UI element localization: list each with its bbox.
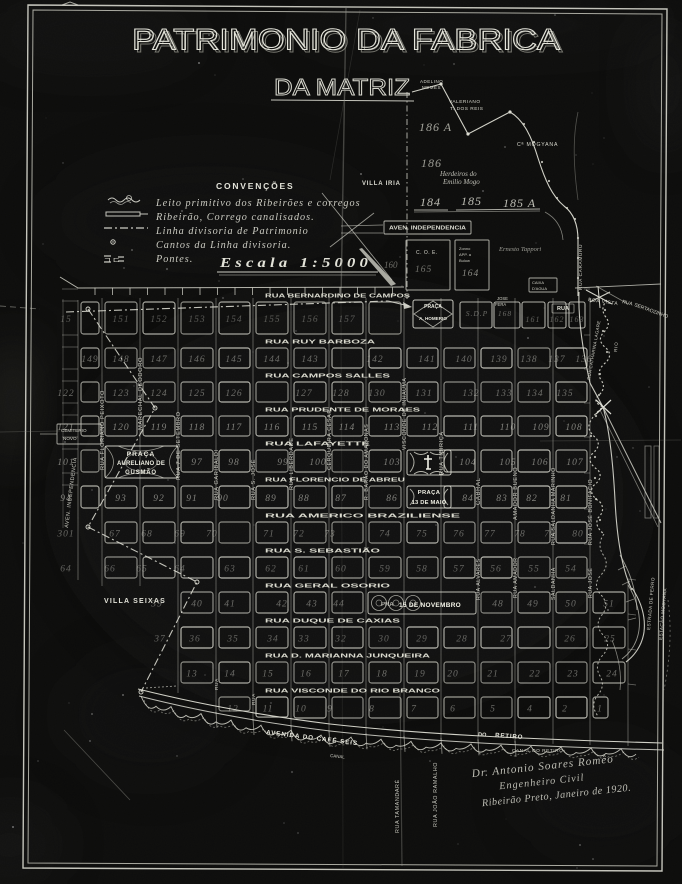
svg-text:Linha divisoria de Patrimonio: Linha divisoria de Patrimonio (155, 226, 309, 237)
svg-text:124: 124 (150, 389, 167, 399)
svg-text:VILLA IRIA: VILLA IRIA (362, 181, 401, 187)
svg-text:142: 142 (366, 355, 383, 365)
svg-text:DO: DO (478, 732, 487, 739)
svg-text:161: 161 (526, 315, 541, 324)
svg-text:70: 70 (206, 530, 218, 540)
svg-text:11: 11 (263, 705, 274, 715)
svg-text:27: 27 (500, 635, 512, 645)
svg-text:JOSE: JOSE (497, 296, 508, 301)
svg-text:156: 156 (301, 315, 318, 325)
svg-text:35: 35 (226, 635, 239, 645)
svg-text:78: 78 (514, 530, 526, 540)
svg-text:115: 115 (302, 423, 319, 433)
svg-text:Bulow: Bulow (459, 258, 470, 263)
svg-text:RUA S. SEBASTIÃO: RUA S. SEBASTIÃO (265, 548, 382, 555)
svg-text:RUA ALVARES: RUA ALVARES (476, 558, 482, 600)
svg-text:186 A: 186 A (419, 120, 452, 134)
svg-text:14: 14 (224, 670, 236, 680)
svg-text:152: 152 (150, 315, 167, 325)
svg-text:CANAL DO RETIRO: CANAL DO RETIRO (512, 748, 563, 754)
svg-text:132: 132 (462, 389, 479, 399)
svg-text:117: 117 (226, 423, 243, 433)
svg-text:RUA GERAL OSORIO: RUA GERAL OSORIO (265, 584, 392, 590)
svg-text:99: 99 (277, 458, 289, 468)
svg-text:81: 81 (560, 494, 572, 504)
svg-text:104: 104 (459, 458, 476, 468)
svg-text:147: 147 (150, 355, 168, 365)
svg-text:MEMES: MEMES (422, 85, 441, 90)
svg-text:24: 24 (606, 670, 618, 680)
svg-text:42: 42 (276, 600, 288, 610)
svg-text:25: 25 (604, 635, 616, 645)
svg-text:RUA S. JOSÉ: RUA S. JOSÉ (250, 459, 257, 500)
svg-text:114: 114 (339, 423, 356, 433)
svg-text:49: 49 (527, 600, 539, 610)
svg-text:13 DE MAIO: 13 DE MAIO (412, 500, 447, 506)
svg-text:RUA AMERICO BRAZILIENSE: RUA AMERICO BRAZILIENSE (265, 514, 461, 520)
svg-text:88: 88 (298, 494, 310, 504)
svg-text:Ernesto Tappori: Ernesto Tappori (498, 246, 541, 253)
svg-text:145: 145 (225, 355, 242, 365)
svg-text:84: 84 (462, 494, 474, 504)
svg-text:64: 64 (60, 565, 72, 575)
svg-text:CEMITERIO: CEMITERIO (61, 428, 87, 433)
svg-text:MARECHAL DEODORO: MARECHAL DEODORO (138, 357, 144, 430)
svg-text:135: 135 (556, 389, 573, 399)
svg-text:109: 109 (532, 423, 549, 433)
svg-text:13: 13 (186, 670, 198, 680)
svg-text:185: 185 (461, 194, 482, 208)
svg-text:164: 164 (462, 269, 479, 279)
svg-text:163: 163 (570, 315, 585, 324)
svg-text:23: 23 (567, 670, 579, 680)
svg-text:57: 57 (453, 565, 465, 575)
svg-text:RUA BERNARDINO DE CAMPOS: RUA BERNARDINO DE CAMPOS (265, 294, 411, 300)
svg-text:ADELINO: ADELINO (420, 79, 443, 84)
svg-text:48: 48 (492, 600, 504, 610)
svg-text:PRAÇA: PRAÇA (424, 304, 442, 310)
svg-text:59: 59 (379, 565, 391, 575)
svg-text:62: 62 (265, 565, 277, 575)
svg-text:RUA LAFAYETTE: RUA LAFAYETTE (265, 442, 371, 448)
svg-text:21: 21 (487, 670, 499, 680)
svg-text:RUA D. MARIANNA JUNQUEIRA: RUA D. MARIANNA JUNQUEIRA (265, 654, 430, 660)
svg-text:43: 43 (306, 600, 318, 610)
svg-text:Leito primitivo dos Ribeirões: Leito primitivo dos Ribeirões e corregos (155, 198, 361, 209)
svg-text:127: 127 (295, 389, 313, 399)
svg-text:155: 155 (263, 315, 280, 325)
svg-text:86: 86 (386, 494, 398, 504)
svg-text:T. DOS REIS: T. DOS REIS (450, 106, 484, 112)
svg-text:7: 7 (411, 705, 417, 715)
svg-text:RUA: RUA (251, 693, 257, 705)
svg-text:Cª MOGYANA: Cª MOGYANA (517, 142, 558, 148)
svg-text:5: 5 (490, 705, 496, 715)
svg-text:Pontes.: Pontes. (155, 254, 193, 265)
svg-text:RUA AMADOR: RUA AMADOR (513, 557, 519, 598)
svg-text:157: 157 (338, 315, 356, 325)
svg-text:60: 60 (335, 565, 347, 575)
svg-text:87: 87 (335, 494, 347, 504)
svg-text:301: 301 (56, 530, 74, 540)
svg-text:185 A: 185 A (503, 196, 536, 210)
svg-text:154: 154 (225, 315, 242, 325)
svg-text:41: 41 (224, 600, 236, 610)
svg-text:50: 50 (565, 600, 577, 610)
svg-text:106: 106 (531, 458, 548, 468)
svg-text:77: 77 (484, 530, 496, 540)
svg-text:98: 98 (228, 458, 240, 468)
svg-text:162: 162 (550, 315, 565, 324)
svg-text:116: 116 (264, 423, 281, 433)
svg-text:125: 125 (188, 389, 205, 399)
svg-text:26: 26 (564, 635, 576, 645)
svg-text:130: 130 (368, 389, 385, 399)
svg-text:18: 18 (376, 670, 388, 680)
svg-text:148: 148 (112, 355, 129, 365)
svg-text:82: 82 (526, 494, 538, 504)
svg-text:128: 128 (332, 389, 349, 399)
svg-text:186: 186 (421, 156, 442, 170)
svg-text:153: 153 (188, 315, 205, 325)
svg-text:15: 15 (60, 315, 72, 325)
svg-text:1: 1 (597, 705, 603, 715)
svg-text:44: 44 (333, 600, 345, 610)
svg-text:PRA: PRA (381, 602, 394, 608)
svg-text:36: 36 (188, 635, 201, 645)
svg-text:6: 6 (450, 705, 456, 715)
svg-text:2: 2 (562, 705, 568, 715)
svg-text:CAIXA: CAIXA (532, 280, 544, 285)
svg-text:CONVENÇÕES: CONVENÇÕES (216, 181, 294, 191)
svg-text:184: 184 (420, 195, 441, 209)
svg-text:69: 69 (174, 530, 186, 540)
svg-text:VALERIANO: VALERIANO (449, 99, 481, 105)
svg-text:123: 123 (112, 389, 129, 399)
svg-text:111: 111 (463, 423, 479, 433)
svg-text:9: 9 (327, 705, 333, 715)
svg-text:74: 74 (379, 530, 391, 540)
svg-text:140: 140 (455, 355, 472, 365)
svg-text:VILLA SEIXAS: VILLA SEIXAS (104, 598, 166, 605)
svg-text:Emilio Mogo: Emilio Mogo (442, 178, 480, 186)
svg-text:54: 54 (565, 565, 577, 575)
svg-text:CABRAL: CABRAL (476, 477, 482, 505)
svg-text:CERQUEIRA CESAR: CERQUEIRA CESAR (327, 409, 333, 470)
svg-text:RUA PRUDENTE DE MORAES: RUA PRUDENTE DE MORAES (265, 408, 421, 414)
svg-text:D'AGUA: D'AGUA (532, 286, 547, 291)
svg-text:118: 118 (189, 423, 206, 433)
svg-text:Escala 1:5000: Escala 1:5000 (219, 256, 372, 271)
svg-text:80: 80 (572, 530, 584, 540)
svg-text:RUA: RUA (214, 678, 220, 690)
svg-text:A. HOMERIO: A. HOMERIO (419, 316, 447, 321)
svg-text:76: 76 (453, 530, 465, 540)
svg-text:134: 134 (526, 389, 543, 399)
svg-text:R. BARÃO DO AMAZONAS: R. BARÃO DO AMAZONAS (363, 424, 370, 500)
svg-text:126: 126 (225, 389, 242, 399)
svg-text:29: 29 (416, 635, 428, 645)
svg-text:15: 15 (262, 670, 274, 680)
svg-text:103: 103 (383, 458, 400, 468)
svg-text:RIO: RIO (613, 341, 619, 352)
svg-text:58: 58 (416, 565, 428, 575)
svg-text:19: 19 (414, 670, 426, 680)
svg-text:10: 10 (295, 705, 307, 715)
svg-text:146: 146 (188, 355, 205, 365)
svg-text:105: 105 (499, 458, 516, 468)
svg-text:91: 91 (186, 494, 198, 504)
svg-text:PRAÇA: PRAÇA (127, 451, 155, 458)
svg-text:151: 151 (112, 315, 129, 325)
svg-text:RUA SALDANHA MARINHO: RUA SALDANHA MARINHO (551, 467, 557, 545)
svg-text:37: 37 (153, 635, 166, 645)
svg-text:83: 83 (496, 494, 508, 504)
svg-text:NOVO: NOVO (63, 436, 77, 441)
svg-text:C. O. E.: C. O. E. (416, 250, 438, 256)
svg-text:143: 143 (301, 355, 318, 365)
svg-text:RUA CAMPOS SALLES: RUA CAMPOS SALLES (265, 374, 391, 380)
svg-text:119: 119 (151, 423, 168, 433)
svg-text:68: 68 (141, 530, 153, 540)
svg-text:8: 8 (369, 705, 375, 715)
svg-text:RUA DUQUE DE CAXIAS: RUA DUQUE DE CAXIAS (265, 619, 401, 625)
svg-text:RUA CARAMURU: RUA CARAMURU (578, 244, 584, 290)
svg-text:Zonno: Zonno (459, 246, 471, 251)
svg-text:66: 66 (104, 565, 116, 575)
svg-text:73: 73 (324, 530, 336, 540)
svg-text:107: 107 (566, 458, 584, 468)
svg-text:APP. a: APP. a (459, 252, 472, 257)
svg-text:113: 113 (384, 423, 401, 433)
svg-text:92: 92 (153, 494, 165, 504)
svg-text:131: 131 (415, 389, 432, 399)
svg-text:RUA LIBERDADE: RUA LIBERDADE (289, 437, 295, 490)
svg-text:PRAÇA: PRAÇA (418, 490, 441, 496)
svg-text:112: 112 (422, 423, 439, 433)
svg-text:RUA JOÃO RAMALHO: RUA JOÃO RAMALHO (432, 762, 439, 827)
svg-text:71: 71 (263, 530, 275, 540)
svg-text:141: 141 (418, 355, 435, 365)
svg-text:149: 149 (81, 355, 98, 365)
svg-text:RUA JOSÉ BONIFACIO: RUA JOSÉ BONIFACIO (587, 479, 594, 545)
svg-text:122: 122 (57, 389, 74, 399)
svg-text:133: 133 (495, 389, 512, 399)
svg-text:72: 72 (293, 530, 305, 540)
svg-text:RUA: RUA (557, 306, 569, 312)
svg-text:144: 144 (263, 355, 280, 365)
svg-text:89: 89 (265, 494, 277, 504)
svg-text:22: 22 (529, 670, 541, 680)
svg-text:Herdeiros do: Herdeiros do (439, 170, 477, 178)
svg-text:RUA JOSÉ: RUA JOSÉ (587, 568, 594, 598)
svg-text:VISCONDE DE INHAÚMA: VISCONDE DE INHAÚMA (401, 377, 408, 450)
svg-text:97: 97 (191, 458, 203, 468)
svg-text:160: 160 (384, 260, 398, 270)
svg-text:168: 168 (498, 309, 512, 318)
svg-text:65: 65 (136, 565, 148, 575)
svg-text:28: 28 (456, 635, 468, 645)
svg-text:16: 16 (300, 670, 312, 680)
svg-text:RUA FLORENCIO DE ABREU: RUA FLORENCIO DE ABREU (265, 478, 405, 484)
svg-text:4: 4 (527, 705, 533, 715)
svg-text:93: 93 (115, 494, 127, 504)
svg-text:SALDANHA: SALDANHA (551, 567, 557, 600)
svg-text:AMADOR BUENO: AMADOR BUENO (513, 467, 519, 520)
svg-text:56: 56 (490, 565, 502, 575)
svg-text:RUA GARIBALDI: RUA GARIBALDI (214, 449, 220, 500)
svg-text:20: 20 (447, 670, 459, 680)
svg-text:61: 61 (298, 565, 310, 575)
svg-text:110: 110 (500, 423, 517, 433)
svg-text:120: 120 (112, 423, 129, 433)
svg-text:15 DE NOVEMBRO: 15 DE NOVEMBRO (399, 602, 461, 609)
svg-text:32: 32 (334, 635, 347, 645)
svg-text:108: 108 (565, 423, 582, 433)
svg-text:FERA: FERA (495, 302, 506, 307)
svg-text:GUSMÃO: GUSMÃO (125, 469, 157, 476)
svg-text:139: 139 (490, 355, 507, 365)
svg-text:Ribeirão, Corrego canalisados.: Ribeirão, Corrego canalisados. (155, 212, 315, 223)
svg-text:138: 138 (520, 355, 537, 365)
svg-text:100: 100 (309, 458, 326, 468)
svg-text:55: 55 (528, 565, 540, 575)
svg-text:63: 63 (224, 565, 236, 575)
svg-text:Cantos da Linha divisoria.: Cantos da Linha divisoria. (156, 240, 291, 251)
svg-text:75: 75 (416, 530, 428, 540)
svg-text:RUA RUY BARBOZA: RUA RUY BARBOZA (265, 340, 375, 346)
svg-text:33: 33 (297, 635, 310, 645)
svg-text:RUA VISCONDE DO RIO BR: RUA VISCONDE DO RIO BRANCO (265, 689, 441, 695)
svg-text:RUA TAMANDARÉ: RUA TAMANDARÉ (394, 779, 401, 833)
svg-text:AVEN. INDEPENDENCIA: AVEN. INDEPENDENCIA (389, 226, 466, 232)
svg-text:S.D.P: S.D.P (466, 309, 489, 318)
svg-text:30: 30 (377, 635, 390, 645)
svg-text:40: 40 (191, 600, 203, 610)
svg-text:DA MATRIZ: DA MATRIZ (274, 74, 410, 100)
svg-text:137: 137 (548, 355, 566, 365)
svg-text:17: 17 (338, 670, 350, 680)
svg-text:165: 165 (415, 265, 432, 275)
svg-text:67: 67 (109, 530, 121, 540)
svg-text:34: 34 (266, 635, 279, 645)
